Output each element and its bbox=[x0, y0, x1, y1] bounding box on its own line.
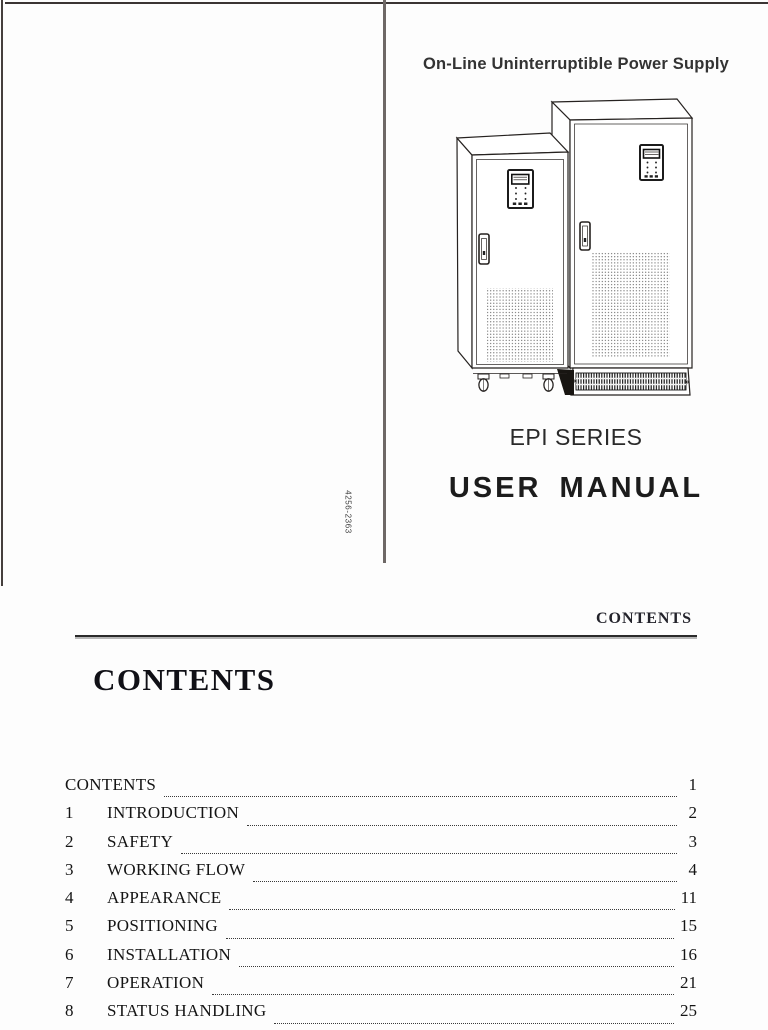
toc-entry-number: 8 bbox=[65, 1001, 107, 1021]
bottom-vent-grille bbox=[571, 368, 690, 395]
vent-grill-dots bbox=[592, 252, 670, 358]
toc-entry-title: POSITIONING bbox=[107, 916, 218, 936]
running-header: CONTENTS bbox=[392, 610, 692, 628]
ups-cabinets-illustration bbox=[440, 82, 760, 402]
toc-entry-title: APPEARANCE bbox=[107, 888, 221, 908]
toc-entry-number: 5 bbox=[65, 916, 107, 936]
toc-entry-page: 4 bbox=[683, 860, 697, 880]
toc-entry-number: 1 bbox=[65, 803, 107, 823]
toc-entry-number: 4 bbox=[65, 888, 107, 908]
page-left-edge bbox=[1, 0, 3, 586]
toc-entry-number: 2 bbox=[65, 832, 107, 852]
door-handle-icon bbox=[580, 222, 590, 250]
toc-entry-title: CONTENTS bbox=[65, 775, 156, 795]
toc-row: 5 POSITIONING 15 bbox=[65, 916, 697, 944]
toc-entry-title: INTRODUCTION bbox=[107, 803, 239, 823]
cover-series-name: EPI SERIES bbox=[384, 424, 768, 451]
dot-leader bbox=[239, 966, 674, 967]
toc-row: 7 OPERATION 21 bbox=[65, 973, 697, 1001]
dot-leader bbox=[229, 909, 674, 910]
dot-leader bbox=[247, 825, 677, 826]
toc-entry-page: 2 bbox=[683, 803, 697, 823]
scanned-manual-page: { "cover": { "product_line": "On-Line Un… bbox=[0, 0, 768, 1024]
toc-entry-page: 3 bbox=[683, 832, 697, 852]
toc-entry-page: 21 bbox=[680, 973, 697, 993]
toc-entry-page: 25 bbox=[680, 1001, 697, 1021]
toc-entry-title: WORKING FLOW bbox=[107, 860, 245, 880]
toc-entry-page: 15 bbox=[680, 916, 697, 936]
dot-leader bbox=[226, 938, 674, 939]
ups-left-cabinet bbox=[457, 133, 568, 391]
toc-entry-page: 16 bbox=[680, 945, 697, 965]
spine-code: 4256-2363 bbox=[344, 490, 353, 534]
toc-row: 2 SAFETY 3 bbox=[65, 832, 697, 860]
page-top-edge bbox=[5, 2, 768, 4]
cabinet-shadow bbox=[557, 369, 574, 395]
cover-manual-title: USER MANUAL bbox=[384, 472, 768, 505]
toc-entry-title: STATUS HANDLING bbox=[107, 1001, 266, 1021]
dot-leader bbox=[181, 853, 677, 854]
toc-entry-title: OPERATION bbox=[107, 973, 204, 993]
table-of-contents: CONTENTS 1 1 INTRODUCTION 2 2 SAFETY 3 3… bbox=[65, 775, 697, 1030]
control-panel-icon bbox=[508, 170, 533, 208]
toc-row: 8 STATUS HANDLING 25 bbox=[65, 1001, 697, 1029]
dot-leader bbox=[164, 796, 677, 797]
contents-heading: CONTENTS bbox=[93, 662, 276, 698]
toc-entry-page: 11 bbox=[681, 888, 697, 908]
toc-row: 3 WORKING FLOW 4 bbox=[65, 860, 697, 888]
toc-row: 1 INTRODUCTION 2 bbox=[65, 803, 697, 831]
toc-entry-title: SAFETY bbox=[107, 832, 173, 852]
door-handle-icon bbox=[479, 234, 489, 264]
toc-entry-title: INSTALLATION bbox=[107, 945, 231, 965]
control-panel-icon bbox=[640, 145, 663, 180]
toc-row: 6 INSTALLATION 16 bbox=[65, 945, 697, 973]
toc-row: 4 APPEARANCE 11 bbox=[65, 888, 697, 916]
toc-row: CONTENTS 1 bbox=[65, 775, 697, 803]
vent-grill-dots bbox=[487, 288, 553, 362]
dot-leader bbox=[253, 881, 677, 882]
caster-wheels bbox=[473, 374, 567, 392]
cover-product-line: On-Line Uninterruptible Power Supply bbox=[396, 55, 756, 74]
toc-entry-number: 7 bbox=[65, 973, 107, 993]
toc-entry-number: 6 bbox=[65, 945, 107, 965]
dot-leader bbox=[212, 994, 674, 995]
toc-entry-number: 3 bbox=[65, 860, 107, 880]
toc-entry-page: 1 bbox=[683, 775, 697, 795]
header-rule bbox=[75, 635, 697, 637]
ups-right-cabinet bbox=[552, 99, 692, 395]
